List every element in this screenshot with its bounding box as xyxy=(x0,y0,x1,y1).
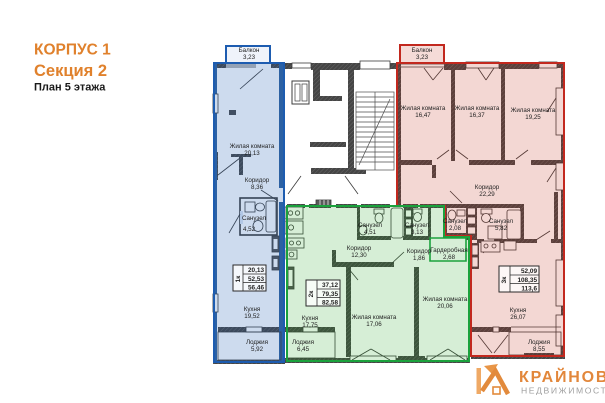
svg-text:Санузел: Санузел xyxy=(443,218,467,225)
svg-text:113,6: 113,6 xyxy=(521,286,537,293)
svg-text:26,07: 26,07 xyxy=(510,314,526,321)
svg-text:Жилая комната: Жилая комната xyxy=(352,314,397,321)
svg-text:20,13: 20,13 xyxy=(244,150,260,157)
svg-text:3к: 3к xyxy=(501,276,508,284)
svg-text:8,36: 8,36 xyxy=(251,184,264,191)
svg-text:КОРПУС 1: КОРПУС 1 xyxy=(34,42,111,59)
svg-text:Санузел: Санузел xyxy=(405,222,429,229)
svg-text:Жилая комната: Жилая комната xyxy=(401,105,446,112)
svg-text:Балкон: Балкон xyxy=(239,47,260,54)
svg-text:Коридор: Коридор xyxy=(347,245,372,252)
svg-text:4,51: 4,51 xyxy=(364,229,377,236)
svg-text:19,52: 19,52 xyxy=(244,313,260,320)
svg-text:79,35: 79,35 xyxy=(322,291,338,298)
svg-text:1к: 1к xyxy=(235,275,242,283)
svg-text:Коридор: Коридор xyxy=(475,184,500,191)
svg-text:Гардеробная: Гардеробная xyxy=(430,247,467,254)
svg-text:Секция 2: Секция 2 xyxy=(34,62,107,80)
svg-text:20,06: 20,06 xyxy=(437,303,453,310)
svg-text:Санузел: Санузел xyxy=(358,222,382,229)
svg-text:2,68: 2,68 xyxy=(443,254,456,261)
svg-text:Лоджия: Лоджия xyxy=(528,339,550,346)
svg-text:5,82: 5,82 xyxy=(495,225,508,232)
svg-text:Жилая комната: Жилая комната xyxy=(423,296,468,303)
svg-text:Жилая комната: Жилая комната xyxy=(230,143,275,150)
svg-text:16,47: 16,47 xyxy=(415,112,431,119)
svg-text:5,92: 5,92 xyxy=(251,346,264,353)
svg-text:52,53: 52,53 xyxy=(248,276,264,283)
svg-text:12,30: 12,30 xyxy=(351,252,367,259)
svg-text:Лоджия: Лоджия xyxy=(292,339,314,346)
svg-text:Коридор: Коридор xyxy=(245,177,270,184)
svg-text:Санузел: Санузел xyxy=(242,215,266,222)
svg-text:17,06: 17,06 xyxy=(366,321,382,328)
svg-text:8,55: 8,55 xyxy=(533,346,546,353)
svg-text:2к: 2к xyxy=(308,290,315,298)
svg-text:Коридор: Коридор xyxy=(407,248,432,255)
svg-text:3,13: 3,13 xyxy=(411,229,424,236)
svg-text:Балкон: Балкон xyxy=(412,47,433,54)
svg-text:План 5 этажа: План 5 этажа xyxy=(34,82,106,94)
svg-text:52,09: 52,09 xyxy=(521,268,537,275)
svg-text:Жилая комната: Жилая комната xyxy=(455,105,500,112)
svg-text:1,86: 1,86 xyxy=(413,255,426,262)
svg-text:6,45: 6,45 xyxy=(297,346,310,353)
svg-text:Кухня: Кухня xyxy=(510,307,527,314)
svg-text:4,52: 4,52 xyxy=(243,226,256,233)
svg-text:16,37: 16,37 xyxy=(469,112,485,119)
svg-text:37,12: 37,12 xyxy=(322,282,338,289)
svg-text:22,29: 22,29 xyxy=(479,191,495,198)
svg-text:20,13: 20,13 xyxy=(248,267,264,274)
svg-text:Кухня: Кухня xyxy=(244,306,261,313)
svg-text:17,75: 17,75 xyxy=(302,322,318,329)
svg-text:НЕДВИЖИМОСТЬ: НЕДВИЖИМОСТЬ xyxy=(521,386,605,396)
svg-text:108,35: 108,35 xyxy=(517,277,537,284)
svg-text:Санузел: Санузел xyxy=(489,218,513,225)
svg-text:3,23: 3,23 xyxy=(416,54,429,61)
svg-text:56,46: 56,46 xyxy=(248,285,264,292)
svg-text:2,08: 2,08 xyxy=(449,225,462,232)
svg-text:КРАЙНОВ: КРАЙНОВ xyxy=(519,367,605,386)
svg-text:Лоджия: Лоджия xyxy=(246,339,268,346)
svg-text:19,25: 19,25 xyxy=(525,114,541,121)
svg-text:Жилая комната: Жилая комната xyxy=(511,107,556,114)
svg-text:Кухня: Кухня xyxy=(302,315,319,322)
svg-text:3,23: 3,23 xyxy=(243,54,256,61)
svg-text:82,58: 82,58 xyxy=(322,300,338,307)
